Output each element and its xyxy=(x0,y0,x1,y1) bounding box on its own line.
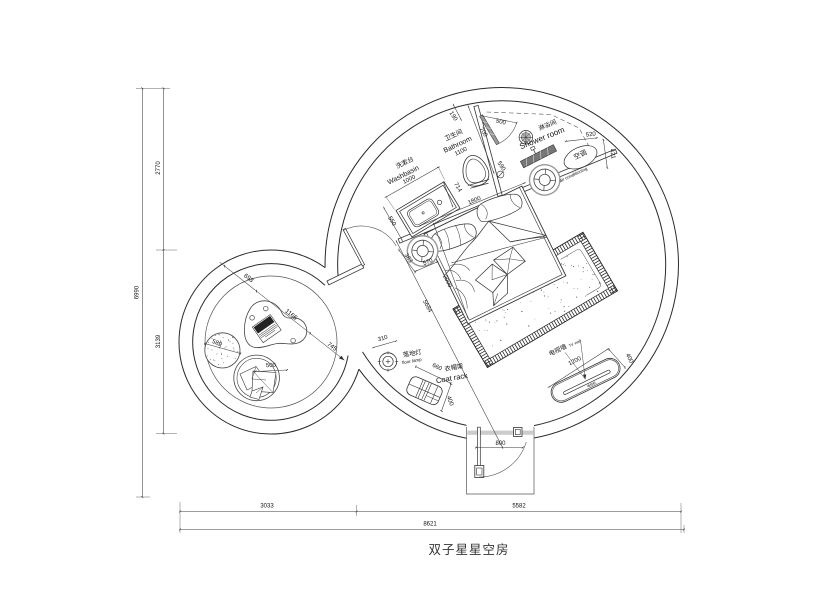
svg-text:8621: 8621 xyxy=(423,522,437,528)
svg-text:5582: 5582 xyxy=(512,504,526,510)
svg-text:3033: 3033 xyxy=(260,504,274,510)
svg-text:500: 500 xyxy=(266,363,277,370)
svg-text:800: 800 xyxy=(495,441,506,447)
svg-text:3139: 3139 xyxy=(156,334,162,348)
svg-text:6990: 6990 xyxy=(135,285,141,299)
svg-text:双子星星空房: 双子星星空房 xyxy=(428,542,509,557)
svg-text:2770: 2770 xyxy=(156,161,162,175)
